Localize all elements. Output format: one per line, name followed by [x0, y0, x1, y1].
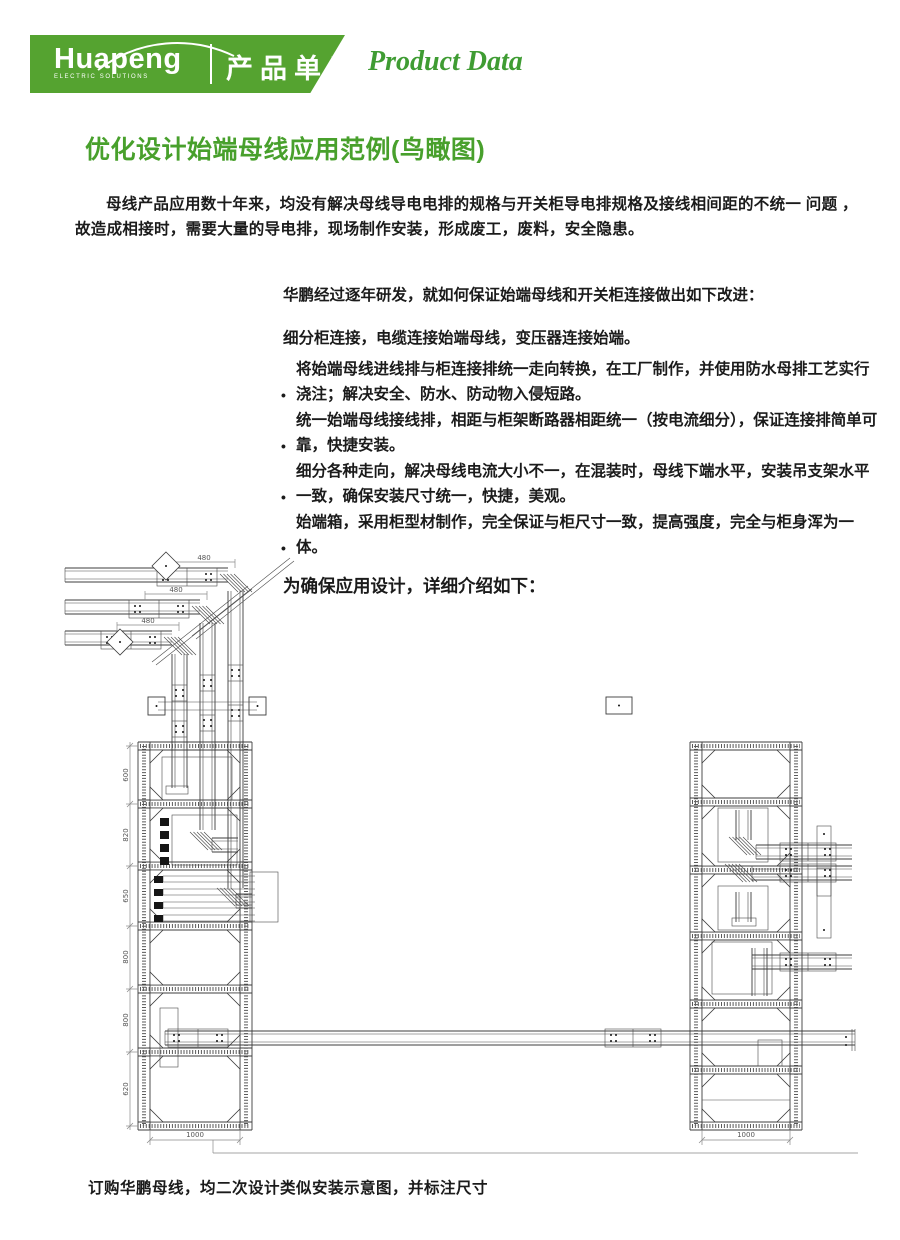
banner-divider — [210, 44, 212, 84]
cabinet-width-label: 1000 — [737, 1131, 755, 1139]
banner-unit-label: 产品单元 — [226, 47, 362, 86]
product-data-heading: Product Data — [368, 46, 523, 78]
duct-dim-label: 480 — [169, 586, 182, 594]
busbar-diagram: 480 480 480 600 820 650 800 800 620 1000… — [40, 550, 870, 1175]
cabinet-section-label: 800 — [122, 950, 130, 963]
bullet-item: 将始端母线进线排与柜连接排统一走向转换，在工厂制作，并使用防水母排工艺实行浇注；… — [283, 357, 879, 407]
bullet-item: 细分各种走向，解决母线电流大小不一，在混装时，母线下端水平，安装吊支架水平一致，… — [283, 459, 879, 509]
duct-dim-label: 480 — [141, 617, 154, 625]
cabinet-section-label: 820 — [122, 828, 130, 841]
duct-dim-label: 480 — [197, 554, 210, 562]
brand-logo: Huapeng ELECTRIC SOLUTIONS — [54, 42, 204, 88]
improvements-lead: 细分柜连接，电缆连接始端母线，变压器连接始端。 — [283, 326, 879, 351]
bullet-item: 统一始端母线接线排，相距与柜架断路器相距统一（按电流细分），保证连接排简单可靠，… — [283, 408, 879, 458]
cabinet-width-label: 1000 — [186, 1131, 204, 1139]
cabinet-section-label: 650 — [122, 889, 130, 902]
improvements-intro: 华鹏经过逐年研发，就如何保证始端母线和开关柜连接做出如下改进： — [283, 283, 879, 308]
intro-paragraph: 母线产品应用数十年来，均没有解决母线导电电排的规格与开关柜导电排规格及接线相间距… — [75, 192, 872, 242]
page-root: Huapeng ELECTRIC SOLUTIONS 产品单元 Product … — [0, 0, 900, 1240]
cabinet-section-label: 600 — [122, 768, 130, 781]
page-title: 优化设计始端母线应用范例(鸟瞰图) — [85, 130, 485, 166]
cabinet-section-label: 620 — [122, 1082, 130, 1095]
header-banner: Huapeng ELECTRIC SOLUTIONS 产品单元 — [30, 35, 345, 93]
bottom-caption: 订购华鹏母线，均二次设计类似安装示意图，并标注尺寸 — [88, 1176, 488, 1198]
improvement-bullet-list: 将始端母线进线排与柜连接排统一走向转换，在工厂制作，并使用防水母排工艺实行浇注；… — [283, 357, 879, 560]
cabinet-section-label: 800 — [122, 1013, 130, 1026]
logo-text: Huapeng — [54, 42, 204, 76]
